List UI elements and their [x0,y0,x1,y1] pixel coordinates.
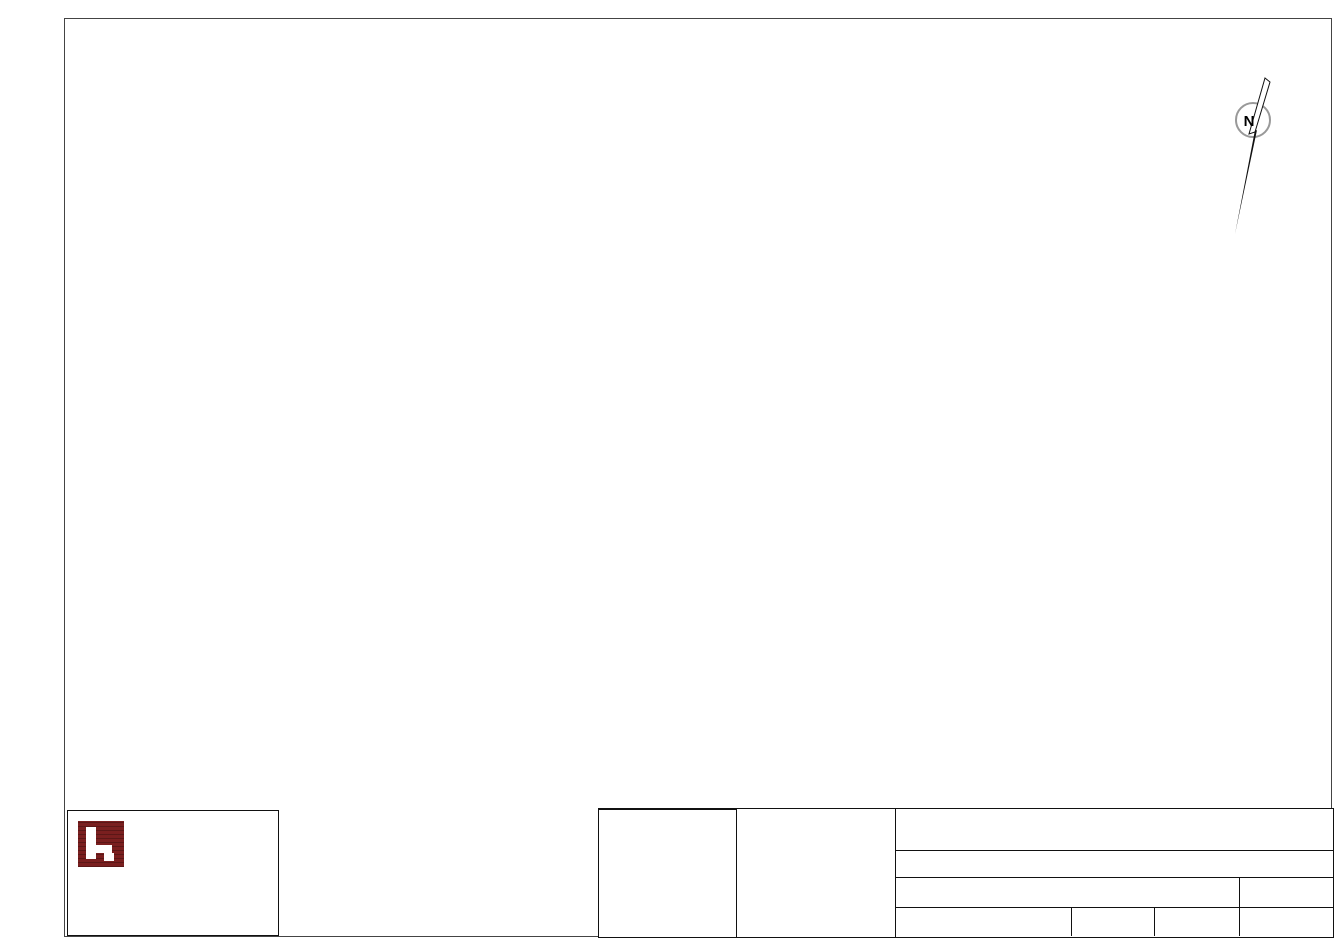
brandschutzplan-sheet: N [0,0,1339,942]
situation-map [736,808,897,938]
logo-block [67,810,279,936]
title-block [895,808,1334,938]
detector-group-legend [598,808,738,938]
legend-title [599,809,737,810]
company-logo-icon [78,821,124,867]
north-arrow-icon: N [1222,72,1284,242]
north-letter: N [1244,113,1255,130]
floor-plan [0,0,1339,942]
